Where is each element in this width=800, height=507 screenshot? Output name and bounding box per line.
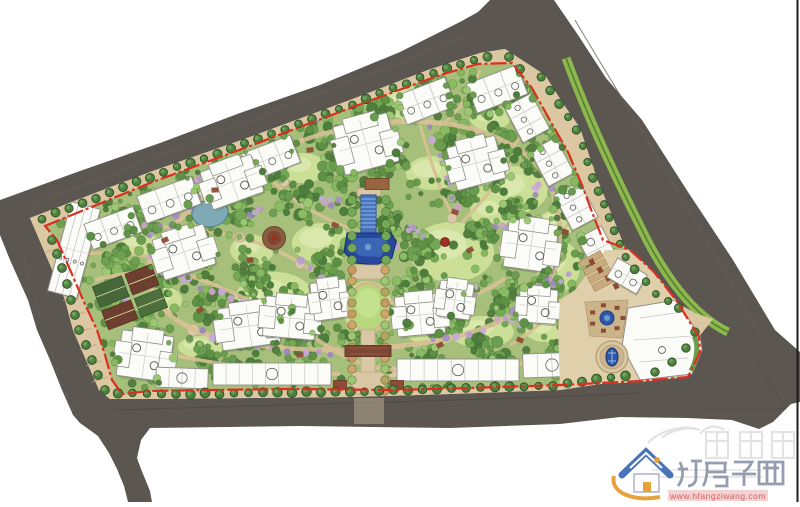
svg-text:www.hfangziwang.com: www.hfangziwang.com <box>669 491 766 501</box>
